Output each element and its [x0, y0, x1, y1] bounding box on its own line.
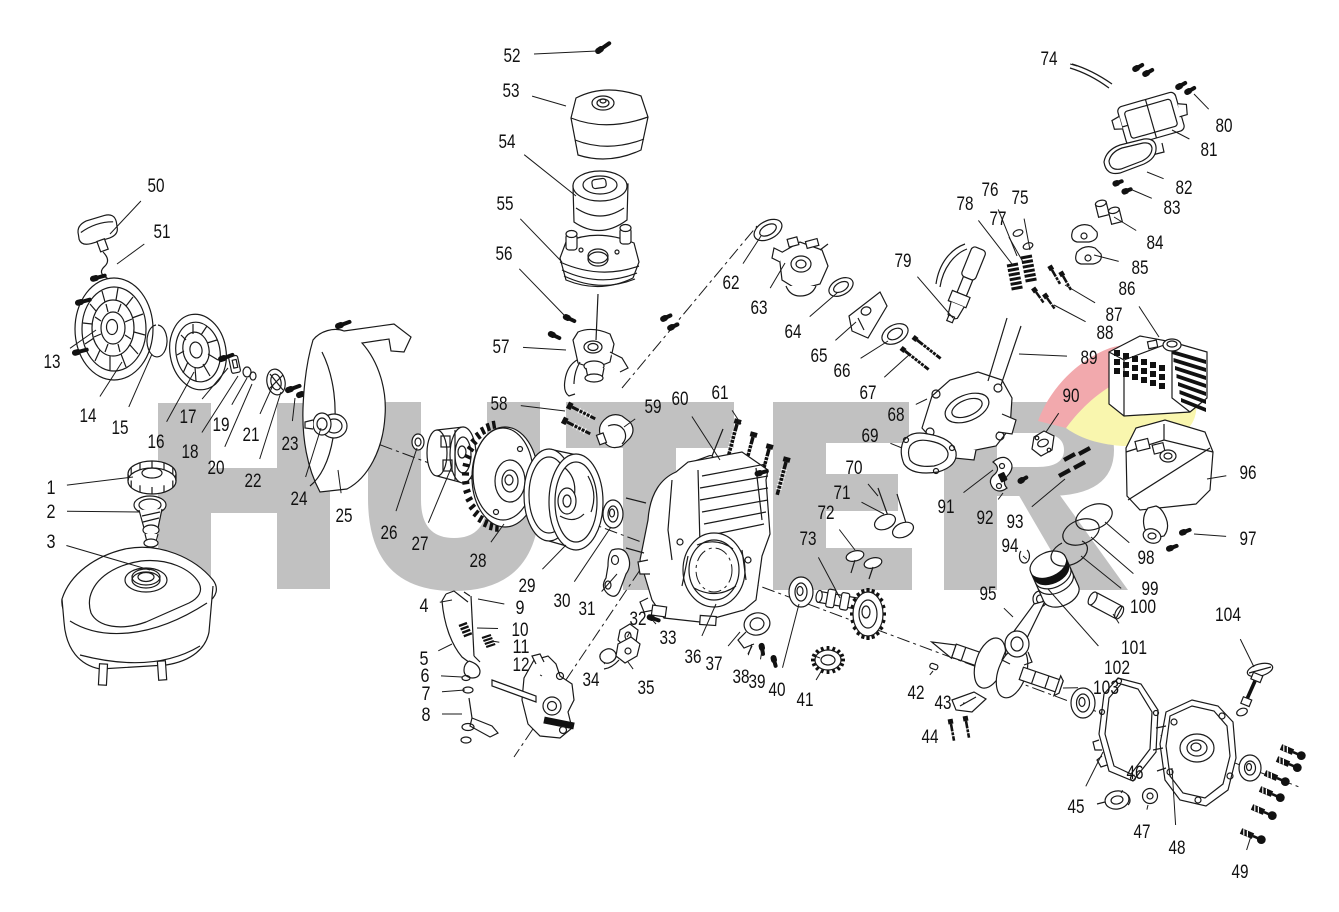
- svg-text:29: 29: [519, 575, 536, 597]
- svg-text:25: 25: [336, 505, 353, 527]
- svg-text:52: 52: [504, 45, 521, 67]
- svg-text:65: 65: [811, 345, 828, 367]
- svg-text:43: 43: [935, 692, 952, 714]
- svg-text:67: 67: [860, 382, 877, 404]
- svg-text:16: 16: [148, 431, 165, 453]
- svg-text:44: 44: [922, 726, 939, 748]
- svg-text:82: 82: [1176, 177, 1193, 199]
- svg-text:23: 23: [282, 433, 299, 455]
- svg-text:74: 74: [1041, 48, 1058, 70]
- svg-text:96: 96: [1240, 462, 1257, 484]
- svg-text:56: 56: [496, 243, 513, 265]
- svg-text:28: 28: [470, 550, 487, 572]
- svg-text:92: 92: [977, 507, 994, 529]
- svg-text:59: 59: [645, 396, 662, 418]
- svg-text:93: 93: [1007, 511, 1024, 533]
- svg-text:70: 70: [846, 457, 863, 479]
- svg-text:36: 36: [685, 646, 702, 668]
- svg-text:18: 18: [182, 441, 199, 463]
- svg-text:20: 20: [208, 457, 225, 479]
- svg-text:21: 21: [243, 424, 260, 446]
- svg-text:22: 22: [245, 470, 262, 492]
- svg-text:91: 91: [938, 496, 955, 518]
- svg-text:80: 80: [1216, 115, 1233, 137]
- svg-text:37: 37: [706, 653, 723, 675]
- svg-text:86: 86: [1119, 278, 1136, 300]
- svg-text:77: 77: [990, 208, 1007, 230]
- svg-text:53: 53: [503, 80, 520, 102]
- svg-text:40: 40: [769, 679, 786, 701]
- svg-text:42: 42: [908, 682, 925, 704]
- svg-text:62: 62: [723, 272, 740, 294]
- svg-text:95: 95: [980, 583, 997, 605]
- svg-text:9: 9: [516, 597, 525, 619]
- svg-text:104: 104: [1215, 604, 1241, 626]
- svg-text:31: 31: [579, 598, 596, 620]
- svg-text:68: 68: [888, 404, 905, 426]
- svg-text:24: 24: [291, 488, 308, 510]
- svg-text:66: 66: [834, 360, 851, 382]
- svg-text:39: 39: [749, 671, 766, 693]
- svg-text:33: 33: [660, 627, 677, 649]
- svg-text:78: 78: [957, 193, 974, 215]
- svg-text:88: 88: [1097, 322, 1114, 344]
- svg-text:4: 4: [420, 595, 429, 617]
- svg-text:76: 76: [982, 179, 999, 201]
- svg-text:2: 2: [47, 501, 56, 523]
- svg-text:3: 3: [47, 531, 56, 553]
- svg-text:49: 49: [1232, 861, 1249, 883]
- svg-text:102: 102: [1104, 657, 1130, 679]
- svg-text:81: 81: [1201, 139, 1218, 161]
- svg-text:14: 14: [80, 405, 97, 427]
- svg-text:55: 55: [497, 193, 514, 215]
- svg-text:64: 64: [785, 321, 802, 343]
- svg-text:98: 98: [1138, 547, 1155, 569]
- svg-text:94: 94: [1002, 535, 1019, 557]
- svg-text:35: 35: [638, 677, 655, 699]
- svg-text:69: 69: [862, 425, 879, 447]
- svg-text:100: 100: [1130, 596, 1156, 618]
- svg-text:45: 45: [1068, 796, 1085, 818]
- svg-text:13: 13: [44, 351, 61, 373]
- svg-text:58: 58: [491, 393, 508, 415]
- svg-text:7: 7: [422, 683, 431, 705]
- svg-text:61: 61: [712, 382, 729, 404]
- svg-text:32: 32: [630, 608, 647, 630]
- svg-text:103: 103: [1093, 677, 1119, 699]
- svg-text:1: 1: [47, 477, 56, 499]
- svg-text:38: 38: [733, 666, 750, 688]
- svg-text:27: 27: [412, 533, 429, 555]
- svg-text:51: 51: [154, 221, 171, 243]
- svg-text:60: 60: [672, 388, 689, 410]
- svg-text:79: 79: [895, 250, 912, 272]
- svg-text:57: 57: [493, 336, 510, 358]
- svg-text:54: 54: [499, 131, 516, 153]
- svg-text:41: 41: [797, 689, 814, 711]
- svg-text:50: 50: [148, 175, 165, 197]
- svg-text:12: 12: [513, 654, 530, 676]
- svg-text:73: 73: [800, 528, 817, 550]
- svg-text:89: 89: [1081, 347, 1098, 369]
- svg-text:84: 84: [1147, 232, 1164, 254]
- svg-text:71: 71: [834, 482, 851, 504]
- svg-text:19: 19: [213, 414, 230, 436]
- svg-text:97: 97: [1240, 528, 1257, 550]
- svg-text:101: 101: [1121, 637, 1147, 659]
- svg-text:26: 26: [381, 522, 398, 544]
- svg-text:75: 75: [1012, 187, 1029, 209]
- svg-text:30: 30: [554, 590, 571, 612]
- svg-text:47: 47: [1134, 821, 1151, 843]
- svg-text:83: 83: [1164, 197, 1181, 219]
- svg-text:63: 63: [751, 297, 768, 319]
- svg-text:85: 85: [1132, 257, 1149, 279]
- svg-text:72: 72: [818, 502, 835, 524]
- svg-text:8: 8: [422, 704, 431, 726]
- svg-text:48: 48: [1169, 837, 1186, 859]
- svg-text:46: 46: [1127, 762, 1144, 784]
- svg-text:34: 34: [583, 669, 600, 691]
- svg-text:17: 17: [180, 406, 197, 428]
- svg-text:15: 15: [112, 417, 129, 439]
- svg-text:90: 90: [1063, 385, 1080, 407]
